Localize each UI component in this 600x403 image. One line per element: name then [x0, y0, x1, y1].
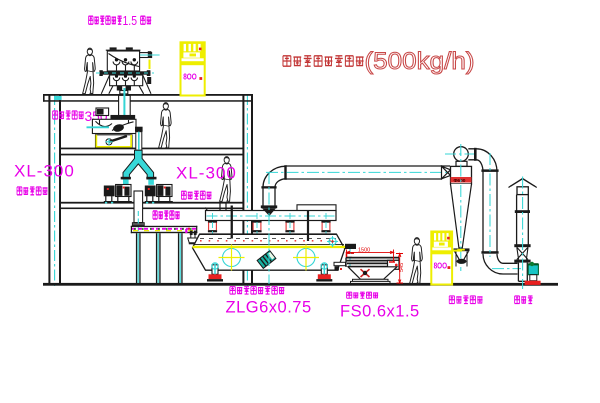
svg-text:(500kg/h): (500kg/h) [365, 48, 475, 75]
svg-text:XL-300: XL-300 [14, 162, 75, 181]
svg-text:XL-300: XL-300 [176, 164, 237, 183]
svg-text:8OO: 8OO [434, 261, 448, 271]
svg-text:1500: 1500 [358, 247, 370, 253]
svg-text:Φ600: Φ600 [454, 178, 466, 184]
svg-text:FS0.6x1.5: FS0.6x1.5 [340, 303, 420, 321]
svg-text:ZLG6x0.75: ZLG6x0.75 [226, 299, 312, 317]
svg-text:8OO: 8OO [183, 72, 197, 82]
svg-text:545: 545 [399, 263, 405, 272]
svg-text:1.5: 1.5 [123, 13, 138, 28]
